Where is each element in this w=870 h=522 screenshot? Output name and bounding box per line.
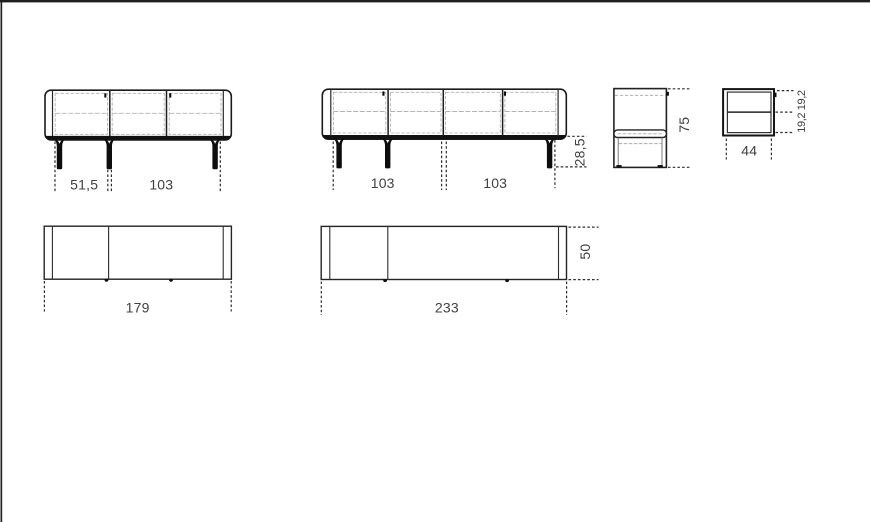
svg-text:19,2: 19,2: [796, 90, 808, 110]
svg-text:233: 233: [435, 300, 459, 316]
svg-text:19,2: 19,2: [796, 113, 808, 133]
svg-text:103: 103: [483, 175, 507, 191]
svg-text:51,5: 51,5: [70, 177, 98, 193]
svg-text:75: 75: [676, 117, 692, 133]
svg-text:103: 103: [371, 175, 395, 191]
svg-text:103: 103: [149, 177, 173, 193]
svg-text:28,5: 28,5: [572, 138, 588, 166]
svg-text:50: 50: [577, 244, 593, 260]
svg-text:44: 44: [741, 143, 757, 159]
svg-text:179: 179: [126, 299, 150, 315]
